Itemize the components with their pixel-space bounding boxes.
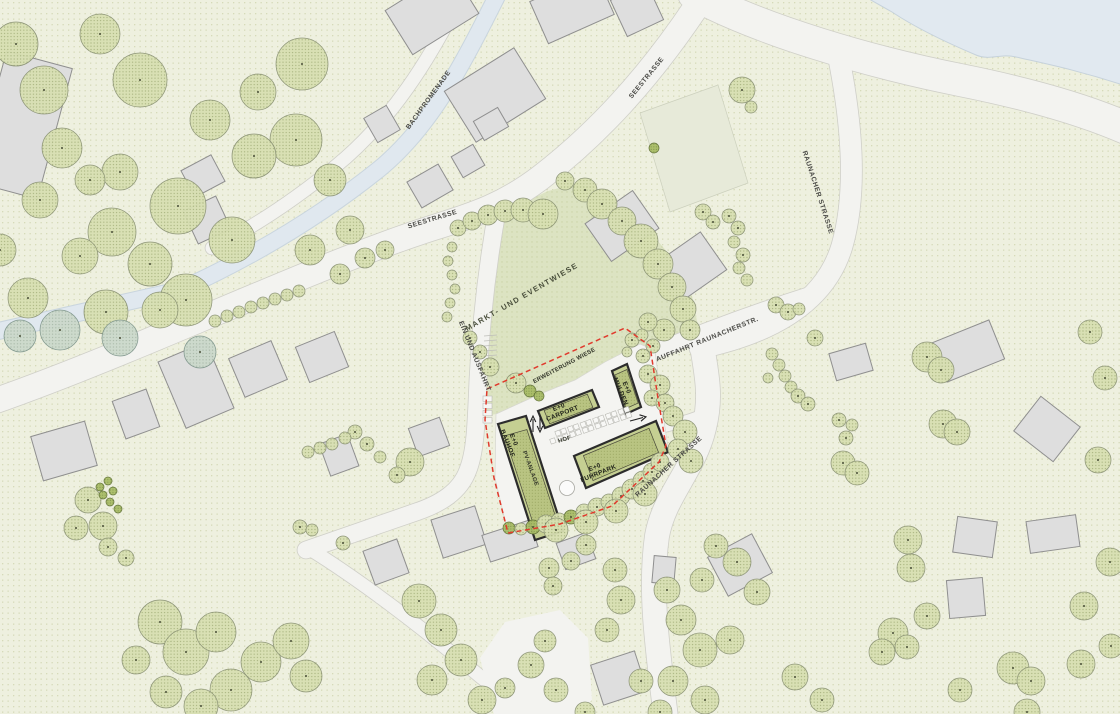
tree-center-dot — [584, 189, 586, 191]
tree-center-dot — [290, 640, 292, 642]
tree-center-dot — [177, 205, 179, 207]
tree — [846, 419, 858, 431]
shrub — [534, 391, 544, 401]
tree — [745, 101, 757, 113]
tree-center-dot — [807, 403, 809, 405]
tree-center-dot — [530, 664, 532, 666]
existing-building — [1026, 515, 1080, 554]
tree — [339, 432, 351, 444]
tree-center-dot — [230, 689, 232, 691]
tree-center-dot — [15, 43, 17, 45]
tree-center-dot — [384, 249, 386, 251]
shrub — [104, 477, 112, 485]
tree — [793, 303, 805, 315]
site-plan-svg: SEESTRASSE SEESTRASSE BACHPROMENADE RAUN… — [0, 0, 1120, 714]
tree-center-dot — [532, 526, 534, 528]
tree — [245, 301, 257, 313]
tree-center-dot — [349, 229, 351, 231]
tree-center-dot — [342, 542, 344, 544]
tree — [314, 442, 326, 454]
tree-center-dot — [253, 155, 255, 157]
tree-center-dot — [107, 546, 109, 548]
circular-element — [560, 481, 575, 496]
tree-center-dot — [299, 526, 301, 528]
tree-center-dot — [756, 591, 758, 593]
tree — [326, 438, 338, 450]
tree-center-dot — [907, 539, 909, 541]
tree-center-dot — [564, 180, 566, 182]
tree-center-dot — [102, 525, 104, 527]
tree-center-dot — [787, 311, 789, 313]
tree — [442, 312, 452, 322]
shrub — [109, 487, 117, 495]
tree-center-dot — [354, 431, 356, 433]
tree — [450, 284, 460, 294]
tree-center-dot — [585, 521, 587, 523]
tree-center-dot — [1104, 377, 1106, 379]
tree-center-dot — [1097, 459, 1099, 461]
tree-center-dot — [1083, 605, 1085, 607]
tree-center-dot — [200, 705, 202, 707]
tree — [302, 446, 314, 458]
tree-center-dot — [621, 220, 623, 222]
tree-center-dot — [680, 619, 682, 621]
tree-center-dot — [652, 345, 654, 347]
existing-building — [946, 578, 985, 619]
tree-center-dot — [647, 321, 649, 323]
tree-center-dot — [647, 373, 649, 375]
tree — [306, 524, 318, 536]
tree-center-dot — [185, 651, 187, 653]
tree-center-dot — [209, 119, 211, 121]
tree-center-dot — [910, 567, 912, 569]
tree-center-dot — [699, 649, 701, 651]
tree-center-dot — [79, 255, 81, 257]
tree-center-dot — [666, 589, 668, 591]
parking-tick — [483, 396, 492, 401]
tree-center-dot — [1089, 331, 1091, 333]
tree — [1099, 634, 1120, 658]
tree-center-dot — [339, 273, 341, 275]
tree-center-dot — [89, 179, 91, 181]
tree-center-dot — [409, 461, 411, 463]
tree-center-dot — [614, 569, 616, 571]
tree-center-dot — [61, 147, 63, 149]
tree-center-dot — [690, 460, 692, 462]
tree-center-dot — [821, 699, 823, 701]
tree — [779, 370, 791, 382]
tree-center-dot — [814, 337, 816, 339]
tree-center-dot — [702, 211, 704, 213]
tree-center-dot — [737, 227, 739, 229]
tree-center-dot — [570, 560, 572, 562]
tree-center-dot — [794, 676, 796, 678]
tree-center-dot — [119, 337, 121, 339]
tree-center-dot — [659, 384, 661, 386]
tree — [728, 236, 740, 248]
tree-center-dot — [487, 214, 489, 216]
existing-building — [953, 516, 998, 557]
tree-center-dot — [689, 329, 691, 331]
tree-center-dot — [555, 689, 557, 691]
tree-center-dot — [926, 615, 928, 617]
tree-center-dot — [956, 431, 958, 433]
tree-center-dot — [159, 621, 161, 623]
tree-center-dot — [631, 488, 633, 490]
tree-center-dot — [664, 402, 666, 404]
tree — [447, 242, 457, 252]
tree-center-dot — [729, 639, 731, 641]
tree-center-dot — [601, 203, 603, 205]
tree-center-dot — [615, 510, 617, 512]
tree — [515, 523, 527, 535]
shrub — [99, 491, 107, 499]
tree-center-dot — [682, 308, 684, 310]
parking-tick — [483, 403, 492, 408]
tree — [636, 329, 648, 341]
tree — [209, 315, 221, 327]
tree-center-dot — [119, 171, 121, 173]
tree-center-dot — [640, 240, 642, 242]
tree-center-dot — [1030, 680, 1032, 682]
tree-center-dot — [305, 675, 307, 677]
tree-center-dot — [125, 557, 127, 559]
tree-center-dot — [481, 699, 483, 701]
tree-center-dot — [301, 63, 303, 65]
tree-center-dot — [548, 567, 550, 569]
tree-center-dot — [149, 263, 151, 265]
tree — [257, 297, 269, 309]
tree-center-dot — [881, 651, 883, 653]
tree-center-dot — [431, 679, 433, 681]
tree-center-dot — [457, 227, 459, 229]
tree-center-dot — [87, 499, 89, 501]
tree-center-dot — [165, 691, 167, 693]
tree-center-dot — [657, 263, 659, 265]
tree-center-dot — [942, 423, 944, 425]
tree — [622, 347, 632, 357]
tree-center-dot — [684, 431, 686, 433]
tree-center-dot — [620, 599, 622, 601]
tree-center-dot — [522, 209, 524, 211]
tree-center-dot — [215, 631, 217, 633]
tree-center-dot — [440, 629, 442, 631]
tree-center-dot — [584, 711, 586, 713]
tree-center-dot — [596, 506, 598, 508]
tree-center-dot — [606, 629, 608, 631]
tree — [374, 451, 386, 463]
tree — [733, 262, 745, 274]
shrub — [96, 483, 104, 491]
tree-center-dot — [105, 311, 107, 313]
tree-center-dot — [396, 474, 398, 476]
parking-tick — [483, 410, 492, 415]
tree — [443, 256, 453, 266]
shrub — [649, 143, 659, 153]
tree-center-dot — [677, 448, 679, 450]
tree-center-dot — [479, 351, 481, 353]
tree — [741, 274, 753, 286]
tree-center-dot — [642, 355, 644, 357]
tree — [447, 270, 457, 280]
tree-center-dot — [199, 351, 201, 353]
tree-center-dot — [231, 239, 233, 241]
tree-center-dot — [504, 687, 506, 689]
tree-center-dot — [631, 339, 633, 341]
tree — [269, 293, 281, 305]
tree-center-dot — [295, 139, 297, 141]
tree-center-dot — [43, 89, 45, 91]
tree-center-dot — [1012, 667, 1014, 669]
tree-center-dot — [111, 231, 113, 233]
tree-center-dot — [742, 254, 744, 256]
tree-center-dot — [257, 91, 259, 93]
tree-center-dot — [75, 527, 77, 529]
tree-center-dot — [99, 33, 101, 35]
tree-center-dot — [515, 382, 517, 384]
tree-center-dot — [712, 221, 714, 223]
tree-center-dot — [489, 366, 491, 368]
site-plan-map: SEESTRASSE SEESTRASSE BACHPROMENADE RAUN… — [0, 0, 1120, 714]
tree-center-dot — [715, 545, 717, 547]
tree-center-dot — [504, 210, 506, 212]
tree-center-dot — [701, 579, 703, 581]
tree-center-dot — [366, 443, 368, 445]
tree-center-dot — [728, 215, 730, 217]
tree-center-dot — [797, 395, 799, 397]
tree-center-dot — [135, 659, 137, 661]
tree-center-dot — [651, 471, 653, 473]
tree — [763, 373, 773, 383]
tree-center-dot — [260, 661, 262, 663]
tree-center-dot — [185, 299, 187, 301]
tree-center-dot — [959, 689, 961, 691]
tree-center-dot — [329, 179, 331, 181]
tree-center-dot — [672, 680, 674, 682]
tree — [445, 298, 455, 308]
tree-center-dot — [856, 472, 858, 474]
tree-center-dot — [640, 680, 642, 682]
tree-center-dot — [838, 419, 840, 421]
tree-center-dot — [555, 529, 557, 531]
shrub — [114, 505, 122, 513]
tree — [1096, 548, 1120, 576]
tree-center-dot — [1109, 561, 1111, 563]
tree-center-dot — [736, 561, 738, 563]
tree-center-dot — [1110, 645, 1112, 647]
tree-center-dot — [309, 249, 311, 251]
tree-center-dot — [460, 659, 462, 661]
tree-center-dot — [775, 304, 777, 306]
tree — [221, 310, 233, 322]
tree-center-dot — [585, 544, 587, 546]
tree — [766, 348, 778, 360]
tree-center-dot — [552, 585, 554, 587]
tree-center-dot — [659, 711, 661, 713]
tree-center-dot — [19, 335, 21, 337]
tree-center-dot — [418, 600, 420, 602]
tree — [281, 289, 293, 301]
shrub — [106, 498, 114, 506]
tree-center-dot — [59, 329, 61, 331]
tree-center-dot — [671, 286, 673, 288]
tree-center-dot — [159, 309, 161, 311]
tree-center-dot — [27, 297, 29, 299]
tree — [233, 306, 245, 318]
tree — [773, 359, 785, 371]
tree-center-dot — [906, 646, 908, 648]
tree-center-dot — [471, 220, 473, 222]
tree-center-dot — [892, 632, 894, 634]
tree-center-dot — [940, 369, 942, 371]
tree-center-dot — [542, 213, 544, 215]
tree-center-dot — [39, 199, 41, 201]
tree-center-dot — [1080, 663, 1082, 665]
tree-center-dot — [741, 89, 743, 91]
tree-center-dot — [672, 415, 674, 417]
tree-center-dot — [651, 397, 653, 399]
tree-center-dot — [364, 257, 366, 259]
tree — [293, 285, 305, 297]
tree-center-dot — [663, 329, 665, 331]
tree-center-dot — [704, 699, 706, 701]
tree-center-dot — [926, 356, 928, 358]
tree-center-dot — [570, 516, 572, 518]
tree-center-dot — [845, 437, 847, 439]
tree-center-dot — [842, 462, 844, 464]
tree-center-dot — [139, 79, 141, 81]
tree-center-dot — [1026, 711, 1028, 713]
tree-center-dot — [544, 640, 546, 642]
